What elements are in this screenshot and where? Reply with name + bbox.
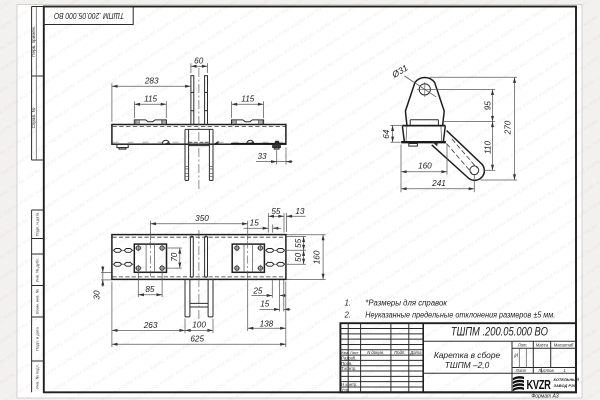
svg-text:85: 85 <box>145 285 155 294</box>
svg-text:Пров.: Пров. <box>341 361 352 366</box>
svg-text:Масса: Масса <box>536 343 549 348</box>
svg-text:Подп.: Подп. <box>394 350 405 355</box>
svg-text:50: 50 <box>294 252 303 262</box>
svg-text:115: 115 <box>241 95 254 104</box>
svg-text:60: 60 <box>194 57 204 66</box>
svg-text:1: 1 <box>563 368 565 373</box>
svg-text:Листов: Листов <box>537 368 554 373</box>
svg-text:ТШПМ .200.05.000 ВО: ТШПМ .200.05.000 ВО <box>451 327 548 339</box>
svg-text:Н.контр.: Н.контр. <box>341 382 357 387</box>
svg-text:55: 55 <box>271 207 281 216</box>
svg-text:15: 15 <box>250 219 260 228</box>
svg-text:Взам. инв. №: Взам. инв. № <box>35 289 40 314</box>
svg-text:Т.контр.: Т.контр. <box>341 366 356 371</box>
svg-text:30: 30 <box>92 290 101 300</box>
svg-text:Лит.: Лит. <box>517 343 528 348</box>
svg-text:138: 138 <box>260 319 274 328</box>
svg-text:*Размеры для справок: *Размеры для справок <box>365 298 447 307</box>
svg-text:2.: 2. <box>343 311 351 320</box>
svg-text:160: 160 <box>418 162 432 171</box>
svg-text:241: 241 <box>431 179 446 188</box>
svg-text:263: 263 <box>143 321 158 330</box>
svg-text:55: 55 <box>294 238 303 248</box>
svg-text:Перв. примен.: Перв. примен. <box>31 26 36 57</box>
svg-text:ЗАВОД РЭУ: ЗАВОД РЭУ <box>554 383 577 388</box>
svg-text:Инв. № дубл.: Инв. № дубл. <box>35 258 40 283</box>
svg-text:95: 95 <box>483 101 492 111</box>
svg-text:Подп. и дата: Подп. и дата <box>35 326 40 350</box>
svg-text:KVZR: KVZR <box>527 377 552 392</box>
svg-text:70: 70 <box>170 252 179 262</box>
svg-text:13: 13 <box>295 207 305 216</box>
svg-text:Разраб.: Разраб. <box>341 356 356 361</box>
svg-text:15: 15 <box>260 299 270 308</box>
svg-text:Изм: Изм <box>341 350 349 355</box>
svg-text:1.: 1. <box>344 298 351 307</box>
svg-text:Лист: Лист <box>515 368 527 373</box>
svg-text:Подп. и дата: Подп. и дата <box>35 212 40 236</box>
svg-text:110: 110 <box>483 141 492 154</box>
svg-text:N докум.: N докум. <box>367 350 384 355</box>
svg-text:ТШПМ –2,0: ТШПМ –2,0 <box>445 360 490 370</box>
svg-text:Каретка в сборе: Каретка в сборе <box>434 350 501 360</box>
svg-text:КОТЕЛЬНЫЙ: КОТЕЛЬНЫЙ <box>554 377 580 382</box>
svg-text:Лист: Лист <box>350 350 359 355</box>
svg-text:Утв.: Утв. <box>341 388 349 393</box>
svg-text:270: 270 <box>504 120 513 135</box>
svg-text:25: 25 <box>252 286 263 295</box>
svg-text:64: 64 <box>382 129 391 139</box>
svg-text:33: 33 <box>257 152 267 161</box>
svg-text:ТШПМ .200.05.000 ВО: ТШПМ .200.05.000 ВО <box>54 11 124 20</box>
svg-text:100: 100 <box>192 321 206 330</box>
svg-text:283: 283 <box>144 76 159 85</box>
svg-text:350: 350 <box>195 214 209 223</box>
svg-text:Справ. №: Справ. № <box>31 108 36 129</box>
svg-text:Масштаб: Масштаб <box>554 343 574 348</box>
svg-text:И: И <box>514 354 518 360</box>
svg-text:Неуказанные предельные отклоне: Неуказанные предельные отклонения размер… <box>365 311 555 320</box>
svg-text:160: 160 <box>312 250 321 264</box>
svg-text:625: 625 <box>190 335 204 344</box>
svg-text:115: 115 <box>144 95 157 104</box>
svg-text:Формат А3: Формат А3 <box>531 394 559 400</box>
svg-text:Инв. № подл.: Инв. № подл. <box>35 364 40 389</box>
svg-text:Дата: Дата <box>409 350 422 355</box>
